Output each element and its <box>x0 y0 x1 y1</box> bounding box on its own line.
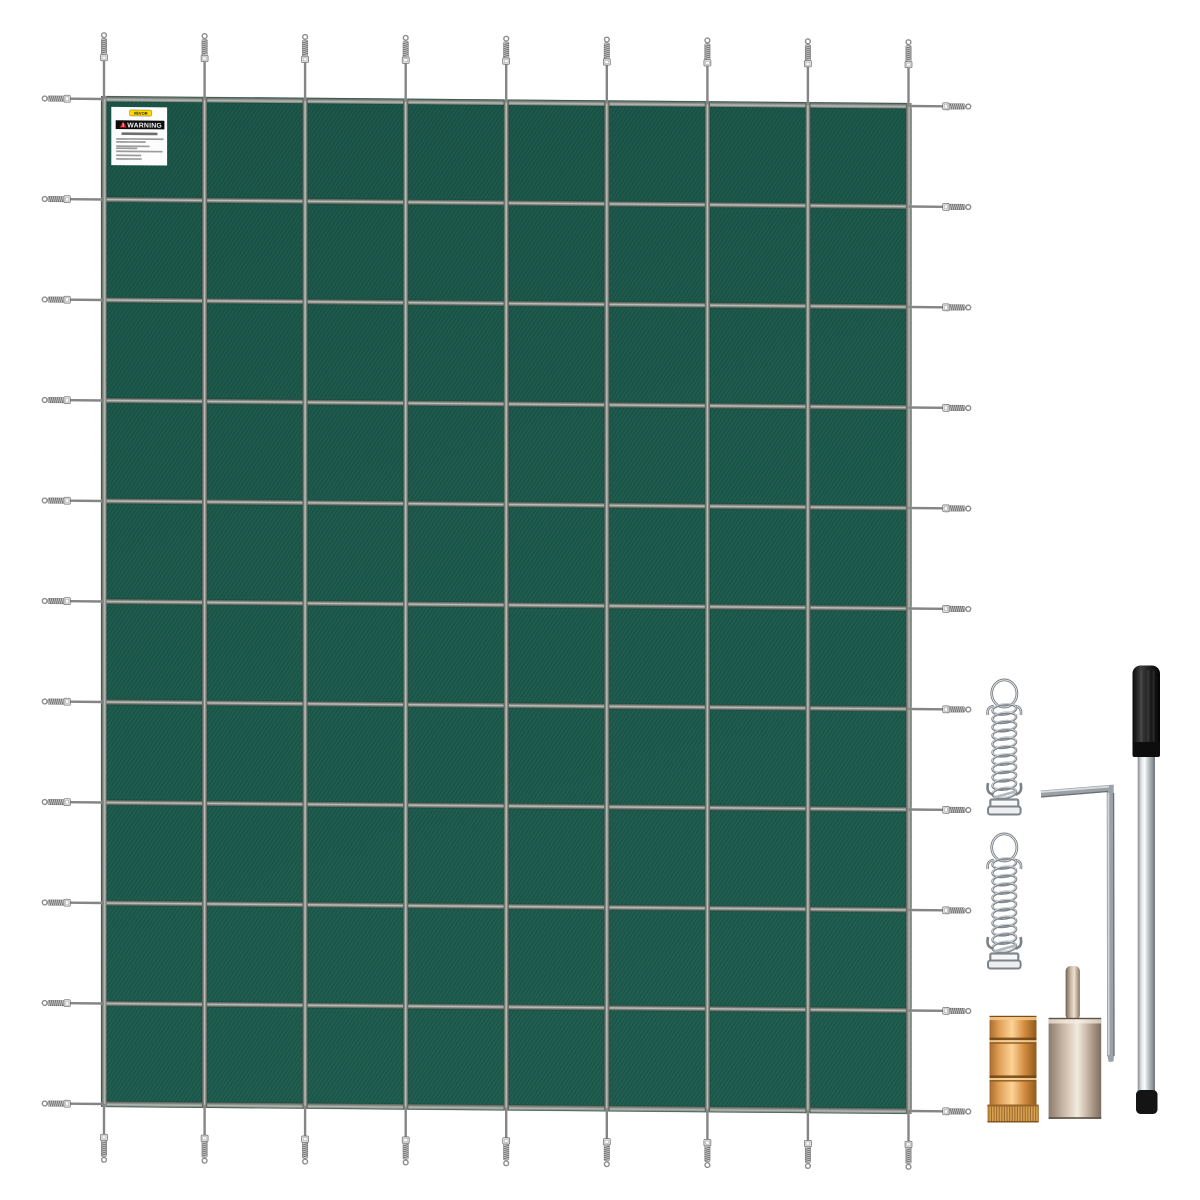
svg-text:VEVOR: VEVOR <box>134 111 148 116</box>
svg-text:WARNING: WARNING <box>127 122 162 129</box>
